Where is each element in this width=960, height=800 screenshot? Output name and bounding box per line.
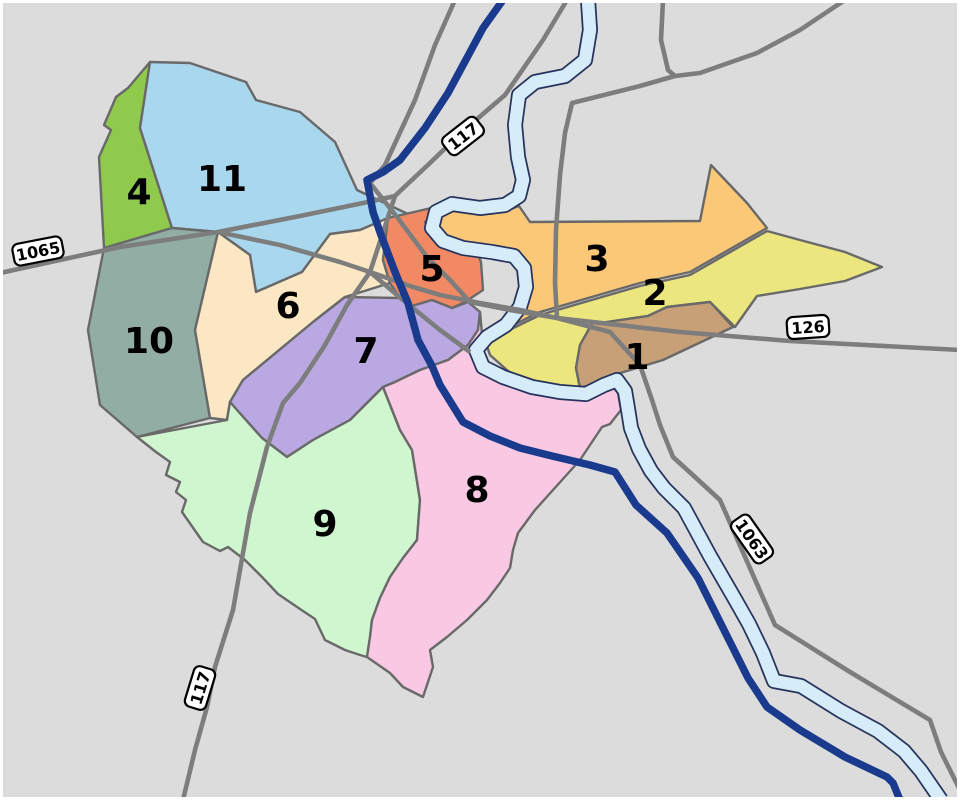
- district-7-label: 7: [353, 331, 378, 372]
- district-9-label: 9: [312, 504, 337, 545]
- district-2-label: 2: [642, 273, 667, 314]
- district-map: 1 2 3 4 5 6 7 8 9 10 11 1065 117 126 106…: [0, 0, 960, 800]
- district-map-svg: 1 2 3 4 5 6 7 8 9 10 11 1065 117 126 106…: [0, 0, 960, 800]
- district-6-label: 6: [275, 286, 300, 327]
- shield-126-text: 126: [791, 317, 826, 338]
- district-8-label: 8: [464, 470, 489, 511]
- shield-126: 126: [786, 315, 829, 340]
- district-3-label: 3: [584, 239, 609, 280]
- district-1-label: 1: [624, 337, 649, 378]
- district-11-label: 11: [197, 159, 247, 200]
- district-10-label: 10: [124, 321, 174, 362]
- district-4-label: 4: [126, 172, 151, 213]
- district-5-label: 5: [419, 249, 444, 290]
